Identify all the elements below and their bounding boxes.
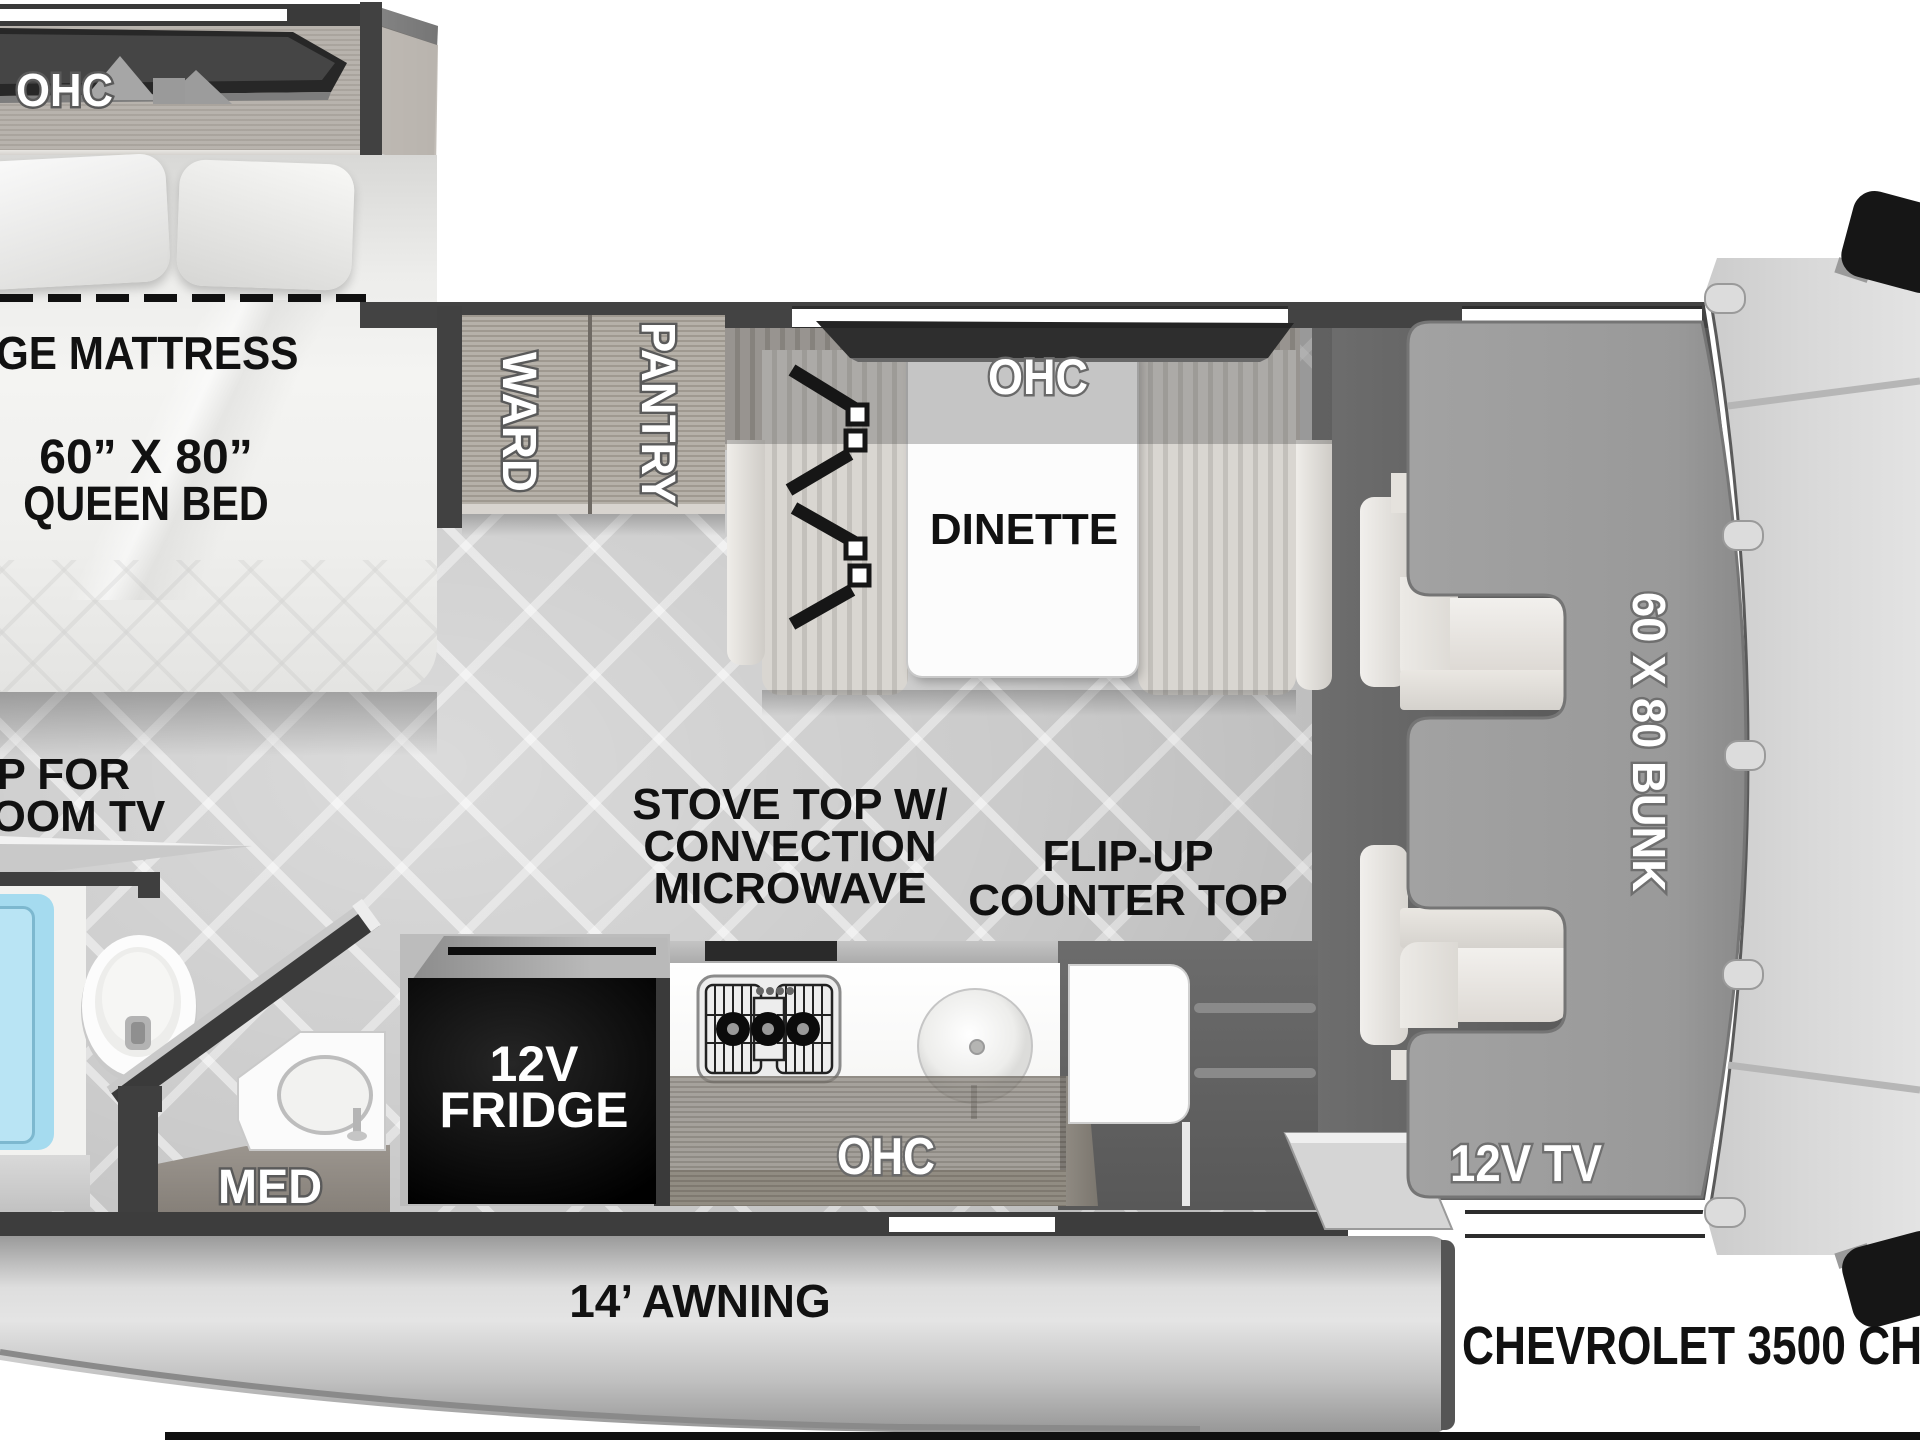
svg-text:OHC: OHC	[988, 350, 1088, 405]
svg-text:OHC: OHC	[16, 64, 113, 116]
svg-text:MED: MED	[218, 1161, 322, 1214]
svg-text:60 X 80 BUNK: 60 X 80 BUNK	[1623, 592, 1675, 892]
svg-text:PANTRY: PANTRY	[631, 322, 684, 504]
svg-text:12V TV: 12V TV	[1450, 1135, 1602, 1193]
svg-text:OHC: OHC	[837, 1128, 935, 1186]
svg-text:WARD: WARD	[492, 352, 545, 492]
